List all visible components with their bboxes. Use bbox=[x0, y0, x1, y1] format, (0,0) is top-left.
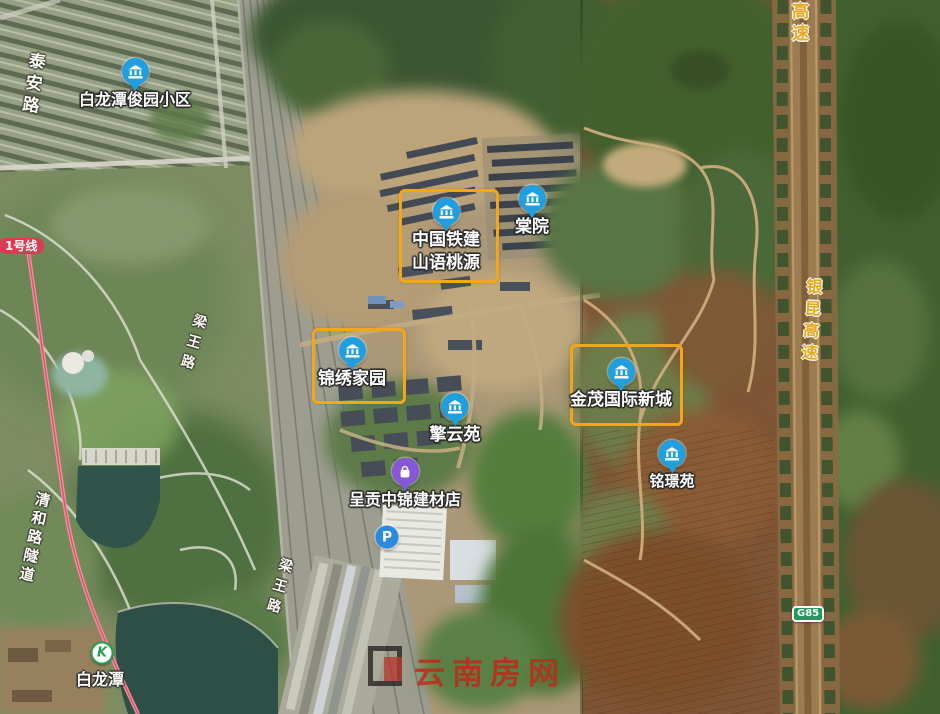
parking-icon[interactable]: P bbox=[376, 526, 399, 549]
poi-label-line: 中国铁建 bbox=[412, 229, 480, 252]
poi-label-zhongguotiejian-shanyutaoyuan: 中国铁建山语桃源 bbox=[412, 229, 480, 275]
shopping-bag-icon bbox=[391, 458, 418, 485]
poi-label-line: 锦绣家园 bbox=[318, 368, 386, 391]
watermark-text: 云南房网 bbox=[414, 648, 566, 693]
poi-label-line: 白龙潭俊园小区 bbox=[79, 89, 191, 111]
watermark-red-square bbox=[384, 657, 402, 681]
poi-label-bailongtan-junyuan-xiaoqu: 白龙潭俊园小区 bbox=[79, 89, 191, 111]
poi-label-line: 擎云苑 bbox=[430, 424, 481, 447]
metro-station-icon[interactable]: K bbox=[91, 642, 114, 665]
poi-label-line: 金茂国际新城 bbox=[570, 389, 672, 412]
poi-label-chenggong-zhongjin-jiancaidian: 呈贡中锦建材店 bbox=[349, 489, 461, 511]
building-icon bbox=[442, 393, 469, 420]
poi-label-line: 铭璟苑 bbox=[649, 471, 694, 491]
poi-jinmao-guoji-xincheng[interactable]: 金茂国际新城 bbox=[570, 358, 672, 412]
poi-label-line: 山语桃源 bbox=[412, 252, 480, 275]
poi-label-tangyuan: 棠院 bbox=[515, 216, 549, 239]
building-icon bbox=[519, 185, 546, 212]
poi-label-line: 呈贡中锦建材店 bbox=[349, 489, 461, 511]
poi-qingyunyuan[interactable]: 擎云苑 bbox=[430, 393, 481, 447]
poi-bailongtan-junyuan-xiaoqu[interactable]: 白龙潭俊园小区 bbox=[79, 58, 191, 111]
building-icon bbox=[433, 198, 460, 225]
poi-label-jinmao-guoji-xincheng: 金茂国际新城 bbox=[570, 389, 672, 412]
building-icon bbox=[608, 358, 635, 385]
metro-station-label: 白龙潭 bbox=[76, 666, 124, 690]
poi-zhongguotiejian-shanyutaoyuan[interactable]: 中国铁建山语桃源 bbox=[412, 198, 480, 275]
poi-tangyuan[interactable]: 棠院 bbox=[515, 185, 549, 239]
poi-jinxiu-jiayuan[interactable]: 锦绣家园 bbox=[318, 337, 386, 391]
poi-mingjingyuan[interactable]: 铭璟苑 bbox=[649, 440, 694, 491]
building-icon bbox=[658, 440, 685, 467]
poi-label-qingyunyuan: 擎云苑 bbox=[430, 424, 481, 447]
poi-label-jinxiu-jiayuan: 锦绣家园 bbox=[318, 368, 386, 391]
poi-chenggong-zhongjin-jiancaidian[interactable]: 呈贡中锦建材店 bbox=[349, 458, 461, 511]
satellite-map[interactable]: 泰安路梁王路梁王路清和路隧道银昆高速银昆高速1号线G85 白龙潭俊园小区中国铁建… bbox=[0, 0, 940, 714]
building-icon bbox=[121, 58, 148, 85]
poi-layer: 白龙潭俊园小区中国铁建山语桃源棠院锦绣家园擎云苑金茂国际新城铭璟苑呈贡中锦建材店… bbox=[0, 0, 940, 714]
watermark: 云南房网 bbox=[364, 642, 566, 693]
building-icon bbox=[339, 337, 366, 364]
poi-label-line: 棠院 bbox=[515, 216, 549, 239]
watermark-logo-icon bbox=[364, 642, 410, 690]
poi-label-mingjingyuan: 铭璟苑 bbox=[649, 471, 694, 491]
